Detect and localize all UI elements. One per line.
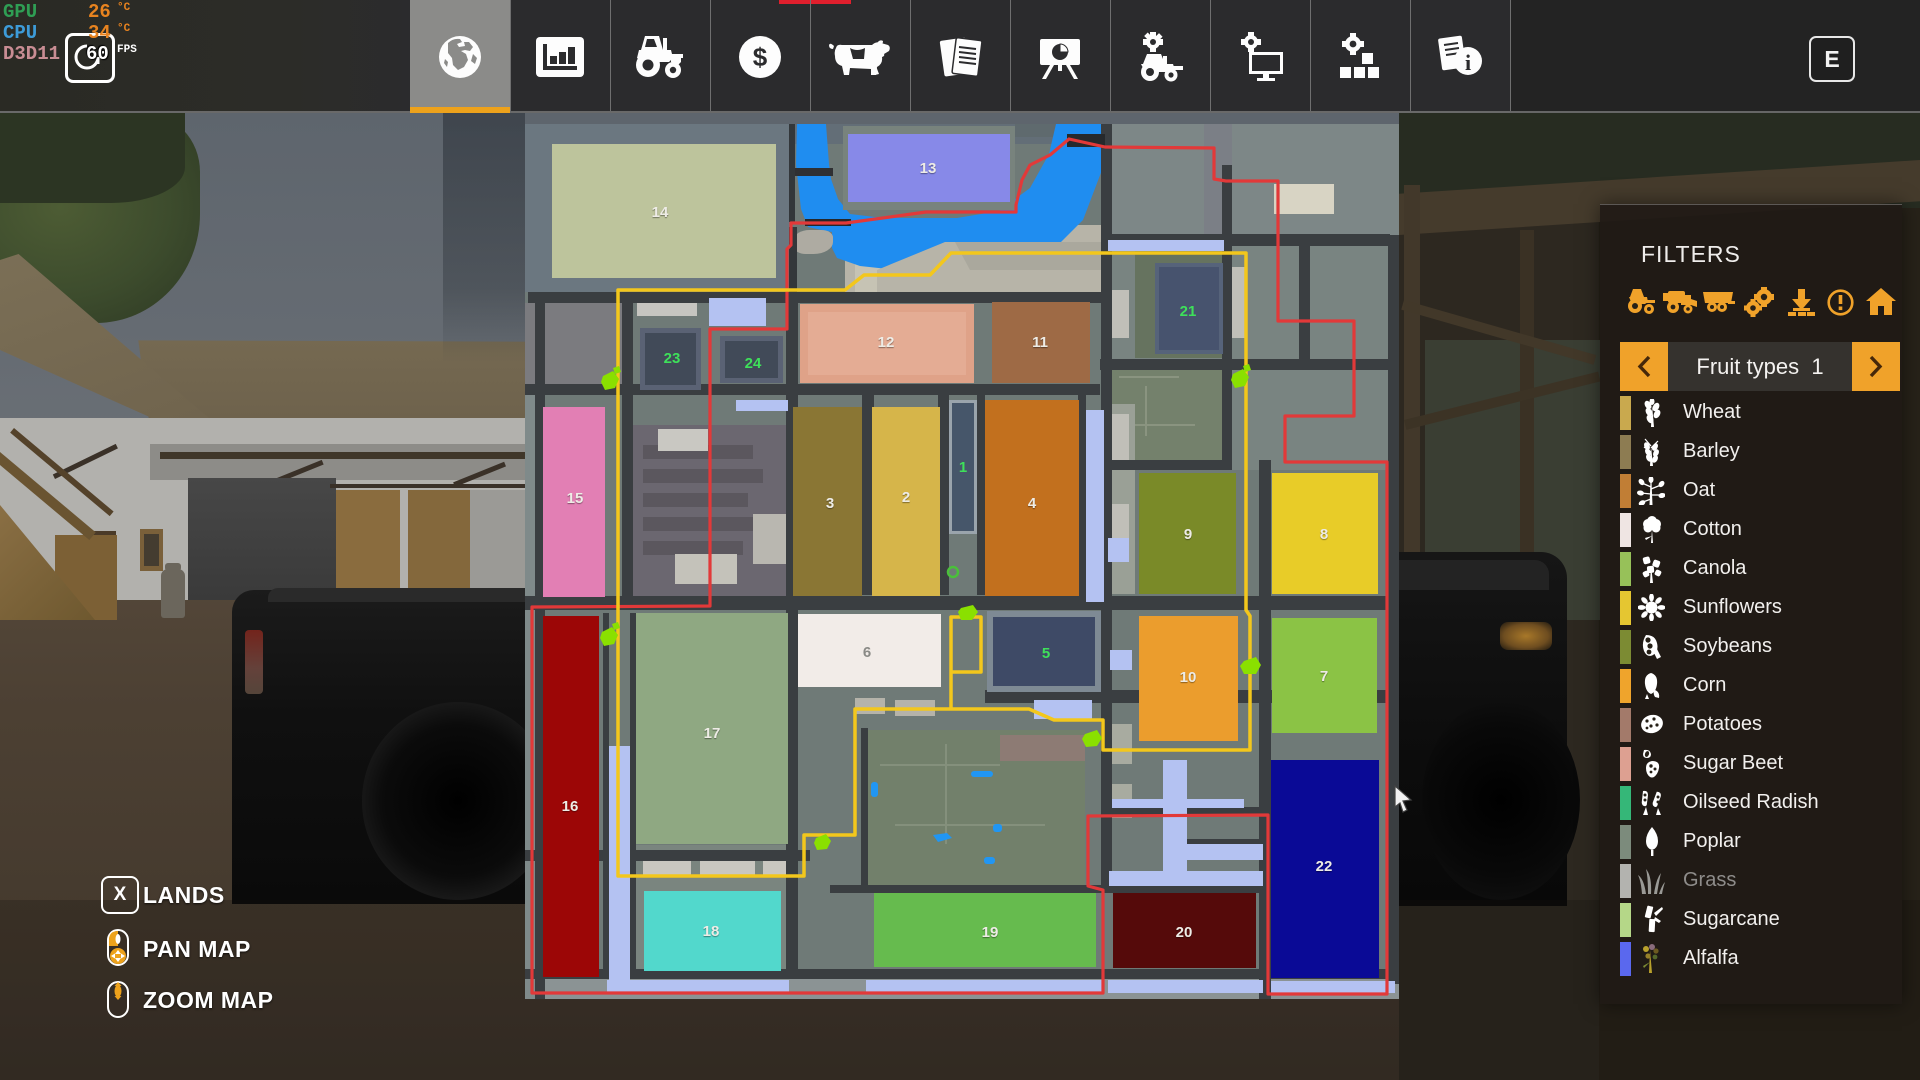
svg-text:i: i xyxy=(1465,50,1471,75)
svg-text:$: $ xyxy=(753,42,768,72)
